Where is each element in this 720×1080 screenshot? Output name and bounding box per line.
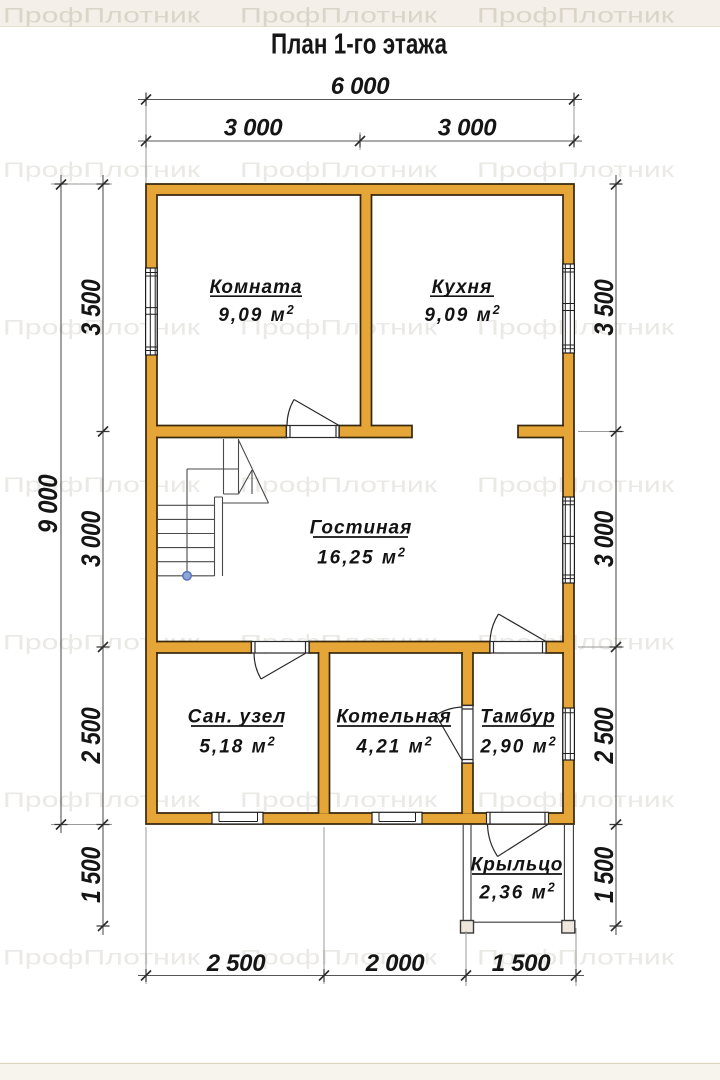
svg-text:План 1-го этажа: План 1-го этажа xyxy=(271,29,448,61)
svg-text:3 000: 3 000 xyxy=(438,115,498,142)
svg-text:ПрофПлотник: ПрофПлотник xyxy=(3,946,201,970)
svg-text:Комната: Комната xyxy=(209,277,302,298)
svg-text:3 000: 3 000 xyxy=(76,511,106,567)
svg-text:6 000: 6 000 xyxy=(331,73,391,100)
svg-text:Кухня: Кухня xyxy=(432,277,492,298)
svg-text:ПрофПлотник: ПрофПлотник xyxy=(3,4,201,28)
svg-text:ПрофПлотник: ПрофПлотник xyxy=(240,473,438,497)
svg-text:3 000: 3 000 xyxy=(224,115,284,142)
svg-text:ПрофПлотник: ПрофПлотник xyxy=(477,316,675,340)
svg-text:3 000: 3 000 xyxy=(589,511,619,567)
svg-text:ПрофПлотник: ПрофПлотник xyxy=(240,158,438,182)
svg-text:ПрофПлотник: ПрофПлотник xyxy=(477,4,675,28)
svg-text:ПрофПлотник: ПрофПлотник xyxy=(477,158,675,182)
svg-text:ПрофПлотник: ПрофПлотник xyxy=(240,4,438,28)
svg-text:ПрофПлотник: ПрофПлотник xyxy=(3,158,201,182)
svg-text:2 500: 2 500 xyxy=(76,707,106,764)
svg-text:ПрофПлотник: ПрофПлотник xyxy=(477,788,675,812)
svg-text:3 500: 3 500 xyxy=(589,279,619,335)
svg-text:Крыльцо: Крыльцо xyxy=(471,855,564,876)
svg-text:Котельная: Котельная xyxy=(336,707,451,728)
svg-text:ПрофПлотник: ПрофПлотник xyxy=(240,788,438,812)
svg-text:16,25 м2: 16,25 м2 xyxy=(317,546,405,569)
svg-text:2 500: 2 500 xyxy=(206,950,267,977)
svg-text:9,09 м2: 9,09 м2 xyxy=(218,303,293,326)
svg-text:9 000: 9 000 xyxy=(33,474,63,533)
svg-text:1 500: 1 500 xyxy=(492,950,552,977)
svg-text:1 500: 1 500 xyxy=(76,847,106,903)
svg-text:ПрофПлотник: ПрофПлотник xyxy=(3,788,201,812)
svg-text:1 500: 1 500 xyxy=(589,847,619,903)
svg-text:Сан. узел: Сан. узел xyxy=(188,707,287,728)
svg-text:2 500: 2 500 xyxy=(589,707,619,764)
svg-text:9,09 м2: 9,09 м2 xyxy=(424,303,499,326)
svg-text:4,21 м2: 4,21 м2 xyxy=(355,735,431,758)
svg-text:2,90 м2: 2,90 м2 xyxy=(479,735,555,758)
svg-text:3 500: 3 500 xyxy=(76,279,106,335)
svg-text:2 000: 2 000 xyxy=(365,950,426,977)
svg-text:5,18 м2: 5,18 м2 xyxy=(199,735,274,758)
svg-text:Тамбур: Тамбур xyxy=(480,707,556,728)
svg-text:Гостиная: Гостиная xyxy=(310,518,413,539)
svg-text:ПрофПлотник: ПрофПлотник xyxy=(477,473,675,497)
svg-text:2,36 м2: 2,36 м2 xyxy=(478,881,554,904)
